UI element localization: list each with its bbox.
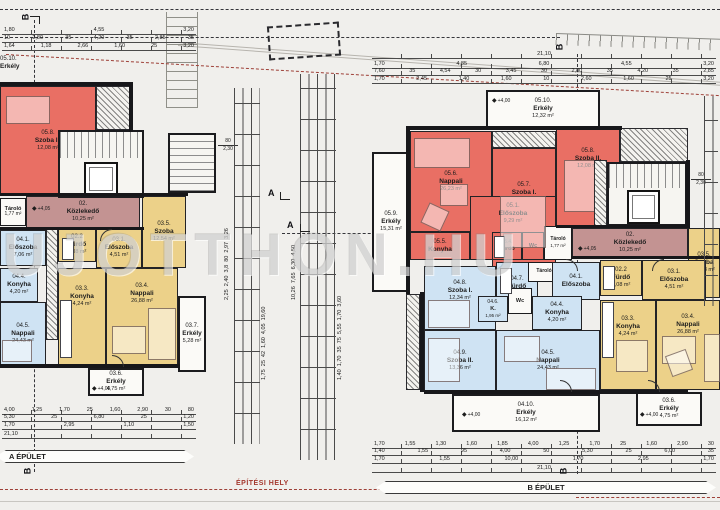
construction-site-boundary-2 [576,497,720,498]
sofa-furniture [704,334,720,382]
room-b-kozlekedo: 02. Közlekedő 10,25 m² [572,228,688,258]
sofa-furniture [2,340,32,362]
floorplan-canvas: B B B B A A 05.10. Erkély 05.8. Szoba II… [0,0,720,510]
room-name: Közlekedő [614,239,647,247]
dim-chain-bottom-left-total: 21,10 [2,430,196,439]
room-label: 03.7. Erkély 5,28 m² [182,323,202,344]
elevation-diamond-icon: ◆ [640,412,645,418]
elevation-mark: ◆ +4,05 [578,246,596,252]
section-marker-a-upper: A [268,188,275,198]
room-id: 05.10. [532,98,554,105]
section-bracket [30,16,40,24]
dim-chain-bottom-right-2: 1,401,55954,00505,30256,0035 [372,448,716,456]
room-name: Nappali [11,330,34,338]
wall-segment [0,82,133,86]
room-label: Wc [516,298,524,304]
elevation-mark: ◆ +4,00 [92,386,110,392]
room-id: 04.5. [11,323,34,330]
dim-chain-vertical-far-right [704,96,718,306]
elevation-mark: ◆ +4,00 [492,98,510,104]
room-label: 03.3. Konyha 4,24 m² [70,286,94,307]
section-marker-b-top-right: B [554,44,564,51]
room-area: 1,77 m² [5,212,22,218]
elevation-diamond-icon: ◆ [92,386,97,392]
room-area: 12,32 m² [532,113,554,119]
entrance-stair-a [168,133,216,193]
elevation-value: +4,00 [646,412,659,418]
room-id: 03.1. [660,269,689,276]
dim-chain-bottom-right-total: 21,10 [372,464,716,473]
building-a-label: A ÉPÜLET [9,452,46,461]
room-label: Tároló 1,77 m² [550,237,565,248]
sheet-frame-line [0,501,720,502]
room-area: 4,20 m² [545,317,569,323]
stair-treads [60,132,142,158]
wall-segment [686,160,690,228]
room-name: Erkély [182,330,202,338]
room-label: 04.4. Konyha 4,20 m² [545,302,569,323]
room-a-erkely-0510-label: 05.10. Erkély [0,56,40,71]
room-label: 03.3. Konyha 4,24 m² [616,316,640,337]
room-b-erkely-036: 03.6. Erkély 4,75 m² [636,392,702,426]
dim-chain-top-right-3: 1,702,451,401,60102,601,60253,20 [372,76,716,84]
room-area: 1,77 m² [550,243,565,248]
room-id: 04.1. [562,274,591,281]
elevation-value: +4,00 [98,386,111,392]
room-area: 1,95 m² [485,313,500,318]
room-name: Előszoba [660,276,689,284]
elevation-diamond-icon: ◆ [32,206,37,212]
room-a-erkely-037: 03.7. Erkély 5,28 m² [178,296,206,372]
room-name: Erkély [0,63,40,71]
fence-line [556,33,720,51]
room-area: 4,24 m² [70,301,94,307]
armchair-furniture [440,184,468,206]
room-name: Erkély [659,405,679,413]
section-marker-b-bottom-right: B [558,468,568,475]
elevator-a [84,162,118,196]
room-b-tarolo-05: Tároló 1,77 m² [544,226,572,260]
room-id: 02. [67,201,100,208]
elevation-mark: ◆ +4,00 [462,412,480,418]
wall-segment [572,256,720,259]
room-name: Wc [516,298,524,304]
sofa-furniture [148,308,176,360]
room-label: 04.1. Előszoba [562,274,591,289]
elevation-diamond-icon: ◆ [578,246,583,252]
room-id: 04.4. [545,302,569,309]
room-name: Előszoba [562,281,591,289]
room-area: 4,24 m² [616,331,640,337]
stair-treads [609,164,685,188]
dining-table-furniture [616,340,648,372]
dim-chain-top-right-2: 7,60354,54303,45302,80354,20352,85 [372,68,716,76]
stairwell-a [58,130,144,198]
wall-hatch [620,128,688,162]
elevation-diamond-icon: ◆ [462,412,467,418]
room-id: 02. [614,232,647,239]
room-id: 05.9. [380,211,402,218]
property-boundary-dashed-line [0,9,720,10]
bathtub-fixture [603,266,615,290]
sofa-furniture [414,138,470,168]
room-id: 03.4. [676,314,699,321]
dim-chain-bottom-left-2: 5,30256,80251,20 [2,414,196,422]
elevator-b [627,190,660,224]
room-name: Nappali [130,290,153,298]
room-b-eloszoba-031: 03.1. Előszoba 4,51 m² [642,260,706,300]
bed-furniture [428,338,460,382]
room-label: 03.1. Előszoba 4,51 m² [660,269,689,290]
elevation-mark: ◆ +4,00 [640,412,658,418]
room-name: Erkély [515,409,537,417]
elevation-value: +4,05 [584,246,597,252]
section-marker-b-top-left: B [20,14,30,21]
room-label: 05.10. Erkély 12,32 m² [532,98,554,119]
room-name: Nappali [676,321,699,329]
dining-table-furniture [112,326,146,354]
room-id: 05.6. [439,171,462,178]
room-area: 4,51 m² [660,284,689,290]
wall-segment [420,292,424,392]
room-label: Tároló 1,77 m² [5,206,22,218]
room-area: 26,88 m² [676,329,699,335]
room-name: Konyha [70,293,94,301]
room-name: Erkély [106,378,126,386]
construction-site-label: ÉPÍTÉSI HELY [236,480,289,487]
wall-segment [0,364,180,368]
room-label: 04.6. K. 1,95 m² [485,300,500,318]
room-name: Konyha [616,323,640,331]
room-label: 03.4. Nappali 26,88 m² [676,314,699,335]
room-area: 26,88 m² [130,298,153,304]
room-b-k-046: 04.6. K. 1,95 m² [478,296,508,322]
kitchen-counter [60,300,72,358]
dim-chain-top-left-3: 1,641,182,661,60253,20 [2,43,196,51]
dashed-outline-rectangle [267,22,341,61]
wall-hatch [96,86,130,130]
dim-chain-top-right-total: 21,10 [372,50,716,59]
building-a-banner: A ÉPÜLET [0,450,200,463]
room-b-erkely-0510: 05.10. Erkély 12,32 m² [486,90,600,128]
room-id: 03.6. [106,371,126,378]
room-b-konyha-044: 04.4. Konyha 4,20 m² [532,296,582,330]
elevation-value: +4,00 [498,98,511,104]
dining-table-furniture [504,336,540,362]
kitchen-counter [602,302,614,358]
room-id: 03.7. [182,323,202,330]
room-id: 05.7. [512,182,537,189]
wall-segment [129,82,133,132]
wall-segment [406,126,622,130]
room-id: 03.3. [616,316,640,323]
building-b-label: B ÉPÜLET [527,483,564,492]
watermark: UJOTTHON.HU [2,220,542,289]
dim-chain-top-left-1: 1,804,553,20 [2,26,196,35]
room-area: 10,25 m² [614,247,647,253]
stairwell-b [607,162,687,226]
room-id: 04.10. [515,402,537,409]
room-id: 05.10. [0,56,40,63]
stair-treads [170,135,214,191]
bed-furniture [428,300,470,328]
bed-furniture [6,96,50,124]
wall-segment [0,193,188,196]
room-area: 4,75 m² [659,413,679,419]
room-area: 5,28 m² [182,338,202,344]
wall-hatch [406,294,420,390]
elevation-value: +4,05 [38,206,51,212]
room-name: Erkély [532,105,554,113]
room-name: Konyha [545,309,569,317]
dim-chain-bottom-left-3: 1,702,951,101,50 [2,422,196,430]
dim-chain-top-left-2: 102,80354,20352,8535 [2,35,196,43]
room-label: 03.6. Erkély 4,75 m² [659,398,679,419]
section-marker-b-bottom-left: B [22,468,32,475]
dim-chain-bottom-right-3: 1,701,5510,001,702,951,70 [372,456,716,464]
elevation-value: +4,00 [468,412,481,418]
room-name: Közlekedő [67,208,100,216]
elevation-mark: ◆ +4,05 [32,206,50,212]
section-bracket-a-upper [280,192,290,200]
room-id: 03.6. [659,398,679,405]
elevation-diamond-icon: ◆ [492,98,497,104]
room-area: 16,12 m² [515,417,537,423]
wall-hatch [594,160,607,226]
room-label: 02. Közlekedő 10,25 m² [614,232,647,253]
wall-hatch [492,131,556,148]
building-b-banner: B ÉPÜLET [370,481,720,494]
room-id: 05.8. [575,148,601,155]
room-label: 04.10. Erkély 16,12 m² [515,402,537,423]
wall-segment [556,225,690,228]
room-area: 4,20 m² [7,289,31,295]
